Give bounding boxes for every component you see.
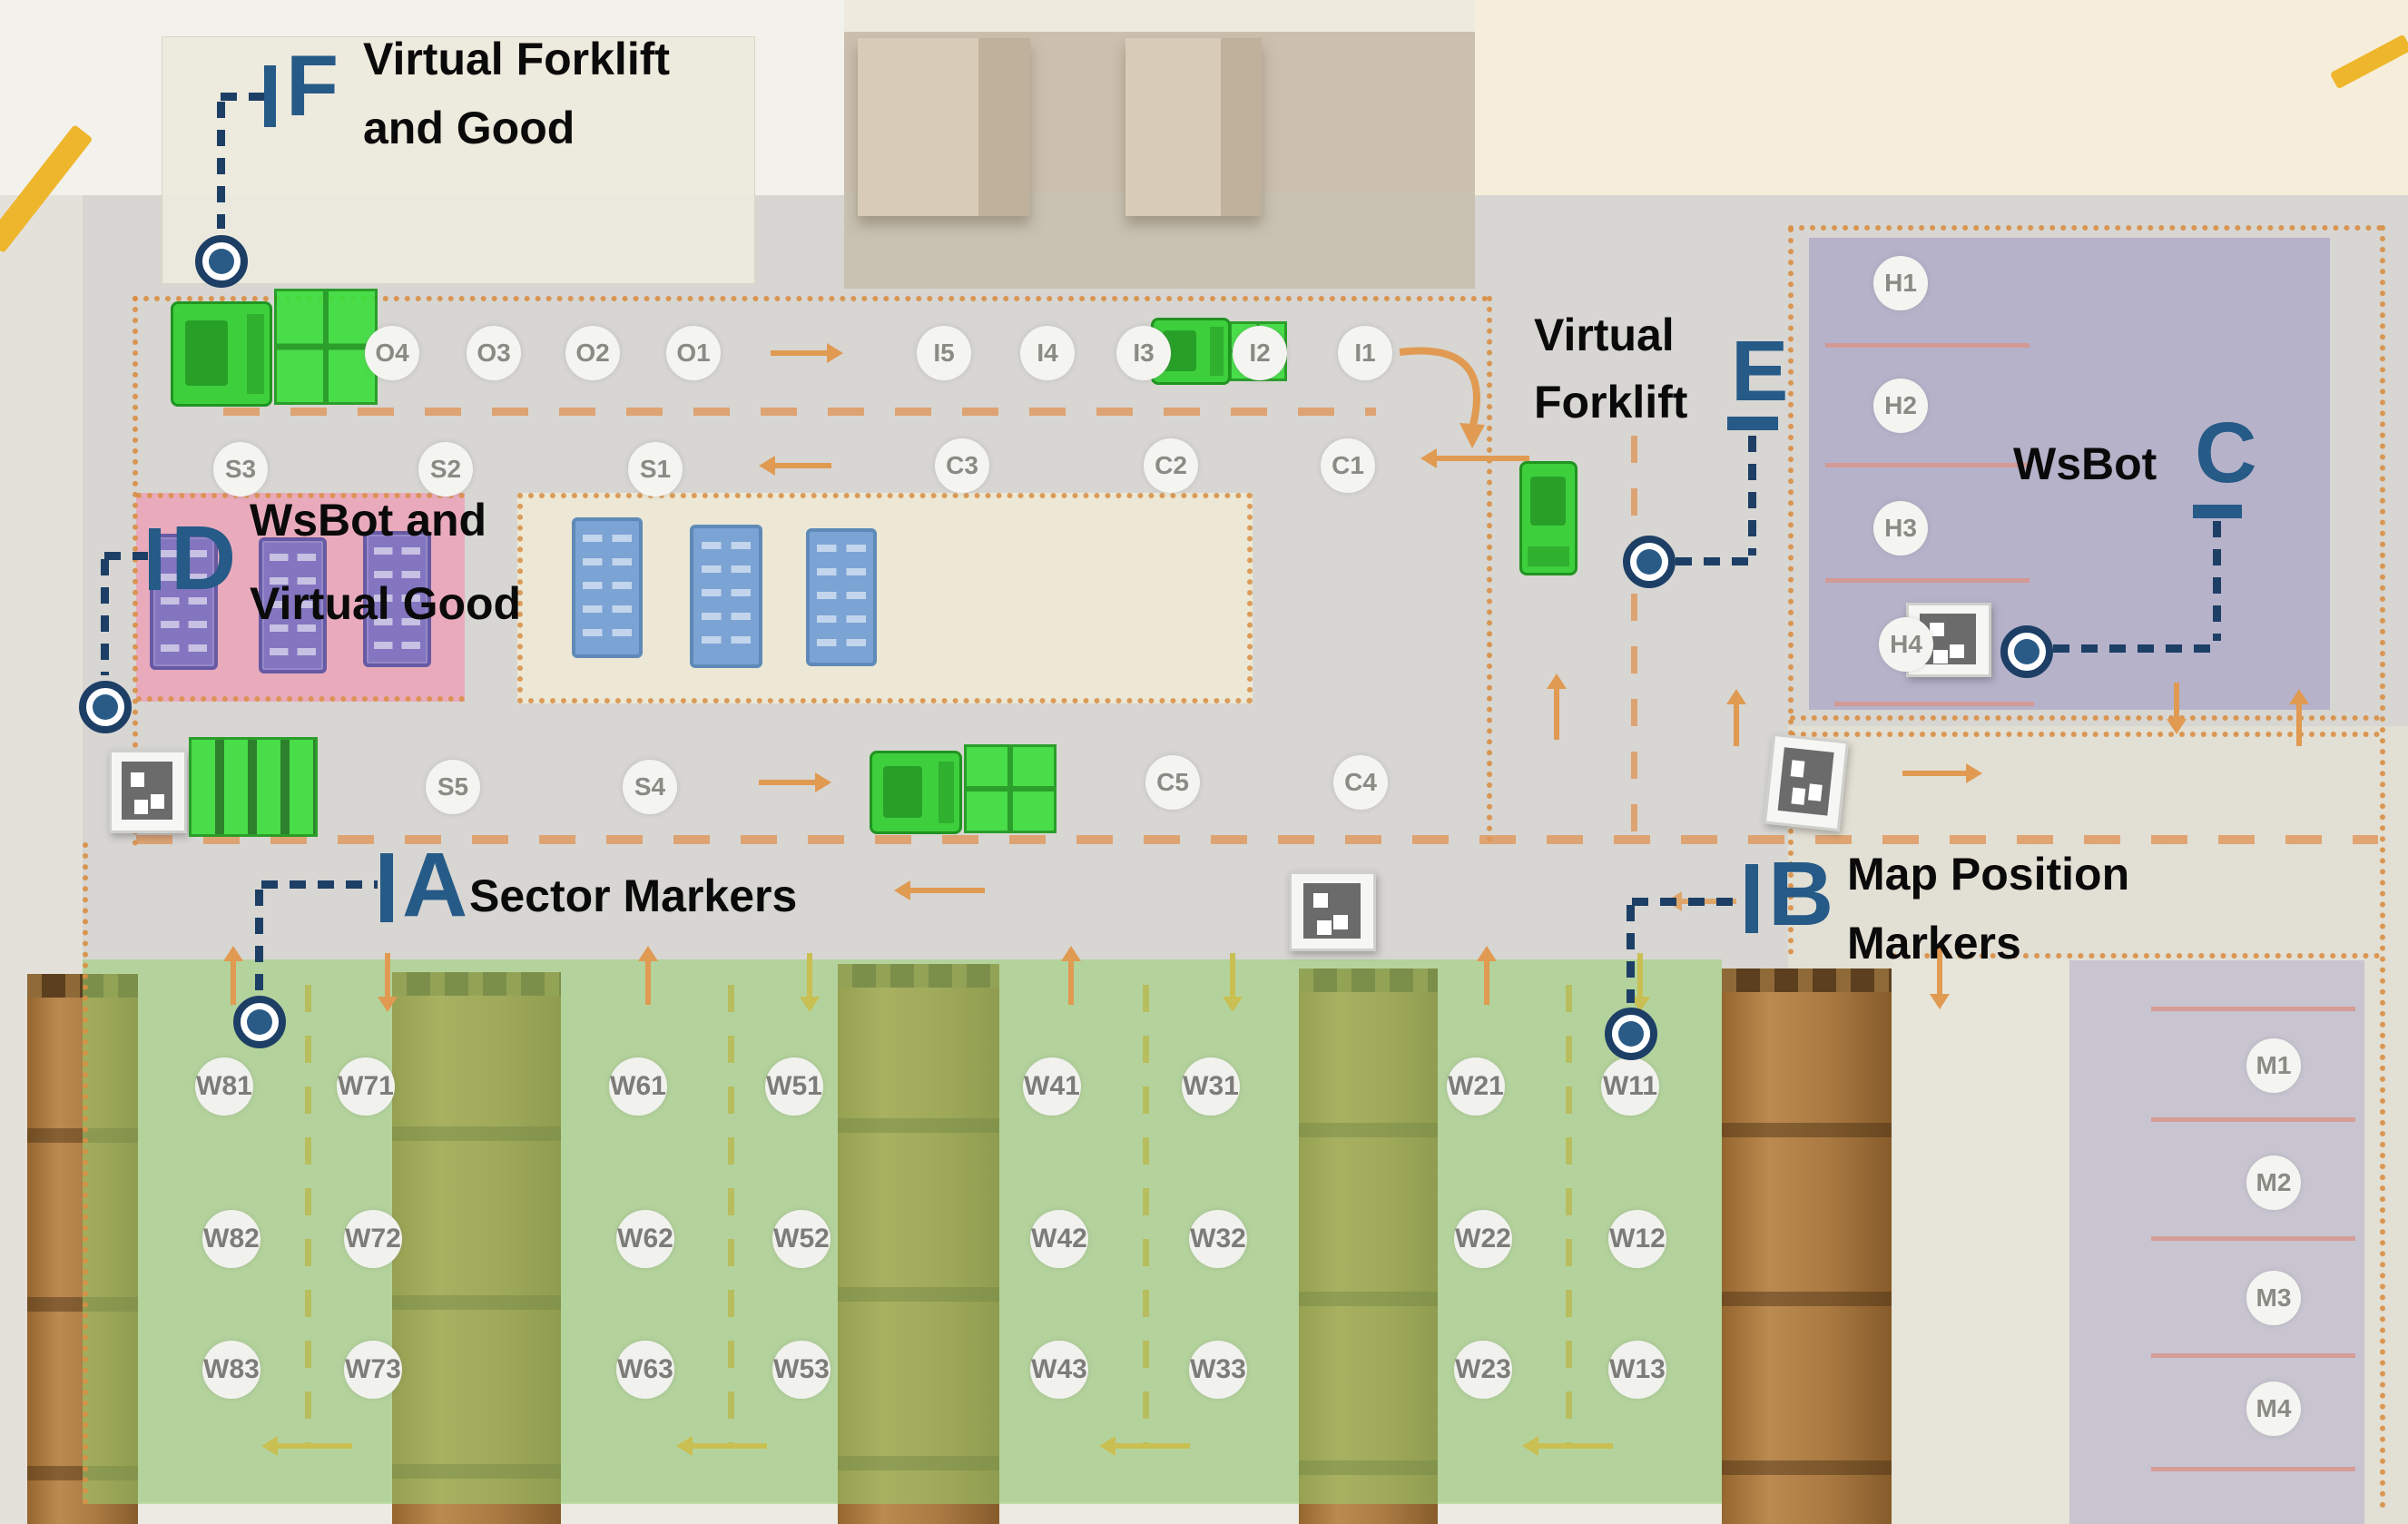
flow-arrow-down — [385, 953, 390, 998]
sector-marker: W42 — [1030, 1210, 1088, 1268]
annotation-target-circle — [79, 681, 132, 733]
sector-marker: W12 — [1608, 1210, 1666, 1268]
flow-arrow-down — [2174, 683, 2179, 721]
floor-strip — [1892, 959, 2069, 1524]
flow-arrow-down — [1637, 953, 1643, 998]
sector-marker: S5 — [426, 760, 480, 814]
annotation-bar — [380, 853, 393, 922]
lane-divider — [305, 985, 311, 1443]
flow-arrow-left — [1537, 1443, 1613, 1449]
sector-marker: W22 — [1454, 1210, 1512, 1268]
virtual-good — [964, 744, 1057, 833]
annotation-dash — [1627, 905, 1635, 1003]
map-position-marker — [1289, 871, 1376, 951]
sector-marker: W61 — [609, 1057, 667, 1116]
annotation-dash — [101, 559, 109, 675]
annotation-dash — [104, 552, 148, 560]
annotation-letter-a: A — [402, 840, 467, 930]
annotation-target-circle — [195, 235, 248, 288]
annotation-label: WsBot — [2013, 441, 2157, 487]
annotation-label: Virtual — [1534, 312, 1675, 358]
sector-marker: W31 — [1182, 1057, 1240, 1116]
virtual-forklift — [1519, 461, 1577, 575]
lane-divider — [136, 835, 2378, 844]
zone-border — [1788, 225, 2383, 231]
annotation-bar — [2193, 505, 2242, 518]
sector-marker: W53 — [772, 1341, 831, 1399]
flow-arrow-up — [645, 959, 651, 1005]
flow-arrow-down — [1230, 953, 1235, 998]
annotation-letter-e: E — [1731, 329, 1788, 415]
sector-marker: W23 — [1454, 1341, 1512, 1399]
flow-arrow-right — [1902, 771, 1968, 776]
annotation-bar — [149, 528, 161, 590]
annotation-dash — [1748, 436, 1756, 556]
sector-line — [1825, 463, 2030, 467]
m-sector-zone — [2069, 960, 2364, 1524]
annotation-label: Virtual Good — [250, 581, 521, 626]
flow-arrow-left — [1114, 1443, 1190, 1449]
sector-marker: W13 — [1608, 1341, 1666, 1399]
annotation-label: Map Position — [1847, 851, 2129, 897]
annotation-target-circle — [233, 996, 286, 1048]
sector-marker: M3 — [2246, 1271, 2301, 1325]
sector-marker: C2 — [1144, 438, 1198, 493]
sector-marker: C4 — [1333, 755, 1388, 810]
sector-marker: W83 — [202, 1341, 260, 1399]
sector-marker: M4 — [2246, 1381, 2301, 1436]
virtual-pallet-blue — [690, 525, 762, 668]
virtual-forklift — [171, 301, 272, 407]
annotation-letter-b: B — [1768, 849, 1833, 939]
cardboard-box — [858, 38, 1030, 216]
annotation-letter-c: C — [2195, 410, 2257, 497]
shelf-rack — [1722, 968, 1892, 1524]
sector-line — [1825, 578, 2030, 583]
sector-marker: O1 — [666, 326, 721, 380]
sector-marker: W43 — [1030, 1341, 1088, 1399]
sector-marker: W81 — [195, 1057, 253, 1116]
annotation-label: and Good — [363, 105, 575, 151]
flow-arrow-right — [771, 350, 829, 356]
lane-divider — [223, 408, 1376, 416]
sector-marker: O2 — [565, 326, 620, 380]
flow-arrow-up — [231, 959, 236, 1005]
annotation-dash — [217, 102, 225, 229]
sector-marker: C1 — [1321, 438, 1375, 493]
sector-marker: O4 — [365, 326, 419, 380]
virtual-good — [274, 289, 378, 405]
flow-arrow-up — [1554, 687, 1559, 740]
sector-line — [2151, 1236, 2355, 1241]
virtual-forklift — [870, 751, 962, 834]
sector-marker: W63 — [616, 1341, 674, 1399]
sector-marker: M2 — [2246, 1155, 2301, 1210]
annotation-label: Markers — [1847, 920, 2021, 966]
virtual-good — [189, 737, 318, 837]
annotation-dash — [2213, 521, 2221, 641]
sector-marker: S3 — [213, 442, 268, 497]
sector-line — [2151, 1117, 2355, 1122]
sector-line — [2151, 1467, 2355, 1471]
zone-border — [83, 842, 88, 1505]
wsbot-aruco-marker — [109, 750, 187, 833]
sector-marker: C5 — [1145, 755, 1200, 810]
sector-marker: W73 — [344, 1341, 402, 1399]
annotation-label: Virtual Forklift — [363, 36, 670, 82]
lane-divider — [1566, 985, 1572, 1443]
flow-arrow-up — [1068, 959, 1074, 1005]
annotation-letter-d: D — [171, 513, 236, 604]
annotation-bar — [1727, 417, 1778, 430]
sector-marker: W41 — [1023, 1057, 1081, 1116]
sector-marker: I2 — [1233, 326, 1287, 380]
flow-arrow-left — [1435, 456, 1529, 461]
flow-arrow-down — [807, 953, 812, 998]
lane-divider — [1143, 985, 1149, 1443]
sector-marker: I3 — [1116, 326, 1171, 380]
sector-marker: W62 — [616, 1210, 674, 1268]
sector-marker: I5 — [917, 326, 971, 380]
sector-marker: H1 — [1873, 256, 1928, 310]
sector-marker: H3 — [1873, 501, 1928, 556]
sector-marker: H2 — [1873, 379, 1928, 433]
annotation-label: Forklift — [1534, 379, 1687, 425]
annotation-bar — [1745, 864, 1758, 933]
virtual-pallet-blue — [572, 517, 643, 658]
sector-marker: W51 — [765, 1057, 823, 1116]
sector-marker: W52 — [772, 1210, 831, 1268]
annotation-bar — [264, 65, 276, 127]
lane-divider — [728, 985, 734, 1443]
virtual-pallet-blue — [806, 528, 877, 666]
sector-marker: W21 — [1447, 1057, 1505, 1116]
sector-marker: S4 — [623, 760, 677, 814]
annotation-target-circle — [2000, 625, 2053, 678]
sector-line — [1834, 702, 2034, 706]
flow-arrow-up — [2296, 703, 2302, 746]
flow-arrow-right — [759, 780, 817, 785]
annotation-dash — [261, 880, 378, 889]
map-position-marker — [1764, 733, 1849, 831]
sector-line — [2151, 1007, 2355, 1011]
annotation-dash — [255, 890, 263, 997]
zone-border — [1790, 715, 2380, 721]
flow-arrow-left — [276, 1443, 352, 1449]
annotation-label: Sector Markers — [469, 873, 797, 919]
sector-marker: S2 — [418, 442, 473, 497]
sector-line — [2151, 1353, 2355, 1358]
sector-marker: W72 — [344, 1210, 402, 1268]
sector-marker: I4 — [1020, 326, 1075, 380]
sector-marker: W11 — [1601, 1057, 1659, 1116]
sector-marker: O3 — [467, 326, 521, 380]
flow-arrow-left — [773, 463, 831, 468]
annotation-letter-f: F — [286, 44, 339, 130]
sector-line — [1825, 343, 2030, 348]
flow-arrow-left — [909, 888, 985, 893]
flow-arrow-up — [1484, 959, 1489, 1005]
flow-arrow-up — [1734, 703, 1739, 746]
flow-arrow-left — [691, 1443, 767, 1449]
annotation-dash — [2053, 644, 2216, 653]
sector-marker: C3 — [935, 438, 989, 493]
sector-marker: H4 — [1879, 617, 1933, 672]
curved-flow-arrow — [1396, 327, 1505, 454]
zone-border — [1790, 732, 2380, 737]
zone-border — [2380, 225, 2385, 1509]
lane-divider — [1631, 436, 1637, 835]
sector-marker: M1 — [2246, 1038, 2301, 1093]
sector-marker: W33 — [1189, 1341, 1247, 1399]
warehouse-figure: O4 O3 O2 O1 I5 I4 I3 I2 I1 S3 S2 S1 C3 C… — [0, 0, 2408, 1524]
sector-marker: W82 — [202, 1210, 260, 1268]
annotation-target-circle — [1623, 536, 1676, 588]
cardboard-box — [1125, 38, 1262, 216]
annotation-dash — [1676, 557, 1750, 565]
sector-marker: W71 — [337, 1057, 395, 1116]
annotation-dash — [221, 93, 264, 101]
annotation-dash — [1632, 898, 1743, 906]
annotation-label: WsBot and — [250, 497, 487, 543]
sector-marker: S1 — [628, 442, 683, 497]
sector-marker: I1 — [1338, 326, 1392, 380]
sector-marker: W32 — [1189, 1210, 1247, 1268]
annotation-target-circle — [1605, 1008, 1657, 1060]
